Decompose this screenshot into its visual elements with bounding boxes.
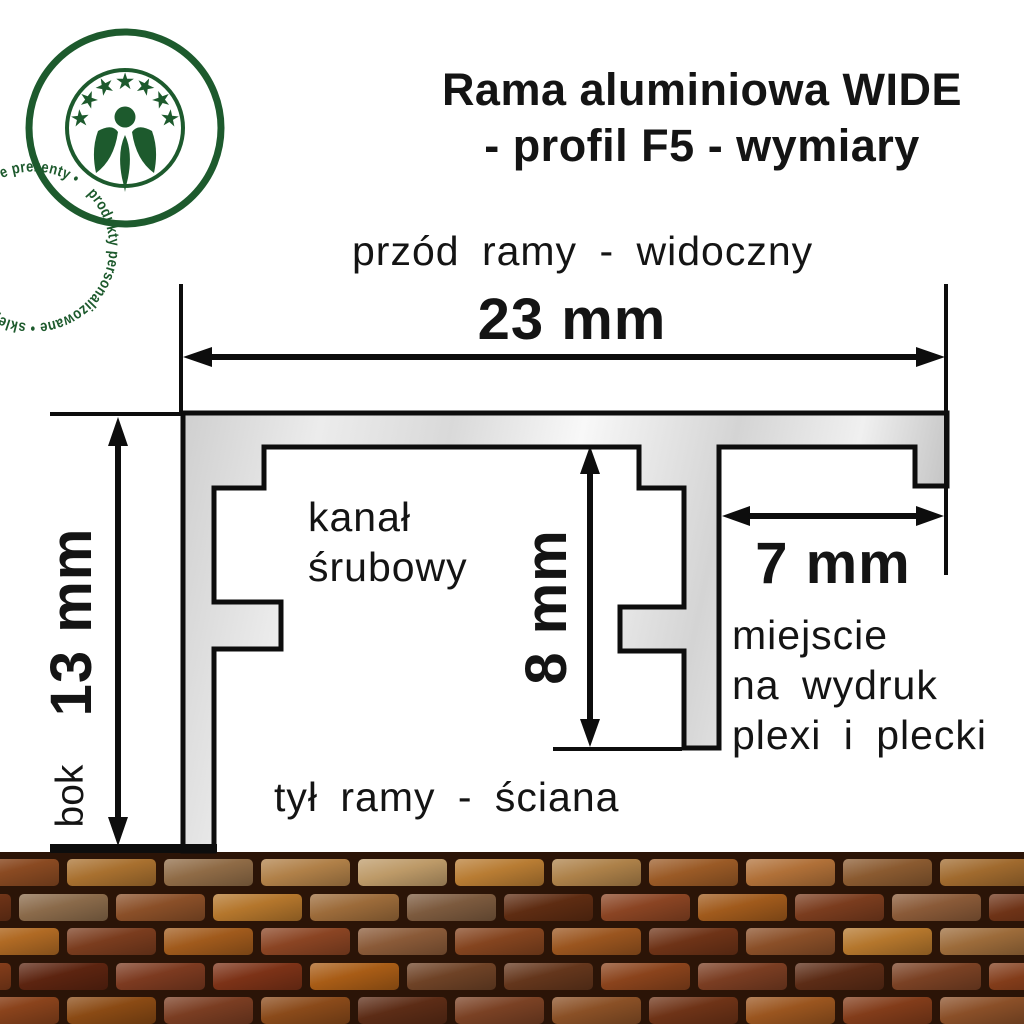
dim-arrow-7mm [722, 506, 944, 526]
dim-arrow-8mm [580, 446, 600, 747]
label-front-side: przód ramy - widoczny [352, 228, 792, 275]
print-area-line2: na wydruk [732, 660, 987, 710]
label-side: bok [49, 736, 95, 856]
print-area-line3: plexi i plecki [732, 710, 987, 760]
dim-arrow-13mm [108, 417, 128, 846]
dim-label-23mm: 23 mm [352, 286, 792, 353]
screw-channel-line1: kanał [308, 492, 468, 542]
screw-channel-line2: śrubowy [308, 542, 468, 592]
label-screw-channel: kanał śrubowy [308, 492, 468, 592]
print-area-line1: miejscie [732, 610, 987, 660]
logo-outer-ring [29, 32, 221, 224]
dim-label-7mm: 7 mm [718, 530, 948, 597]
shop-logo: produkty personalizowane • sklepzpomysle… [0, 32, 221, 337]
page-title: Rama aluminiowa WIDE - profil F5 - wymia… [410, 62, 994, 174]
dim-label-13mm: 13 mm [38, 492, 102, 752]
dim-label-8mm: 8 mm [513, 487, 573, 727]
label-back-side: tył ramy - ściana [274, 774, 619, 821]
infographic: produkty personalizowane • sklepzpomysle… [0, 0, 1024, 1024]
title-line1: Rama aluminiowa WIDE [410, 62, 994, 118]
title-line2: - profil F5 - wymiary [410, 118, 994, 174]
label-print-area: miejscie na wydruk plexi i plecki [732, 610, 987, 760]
